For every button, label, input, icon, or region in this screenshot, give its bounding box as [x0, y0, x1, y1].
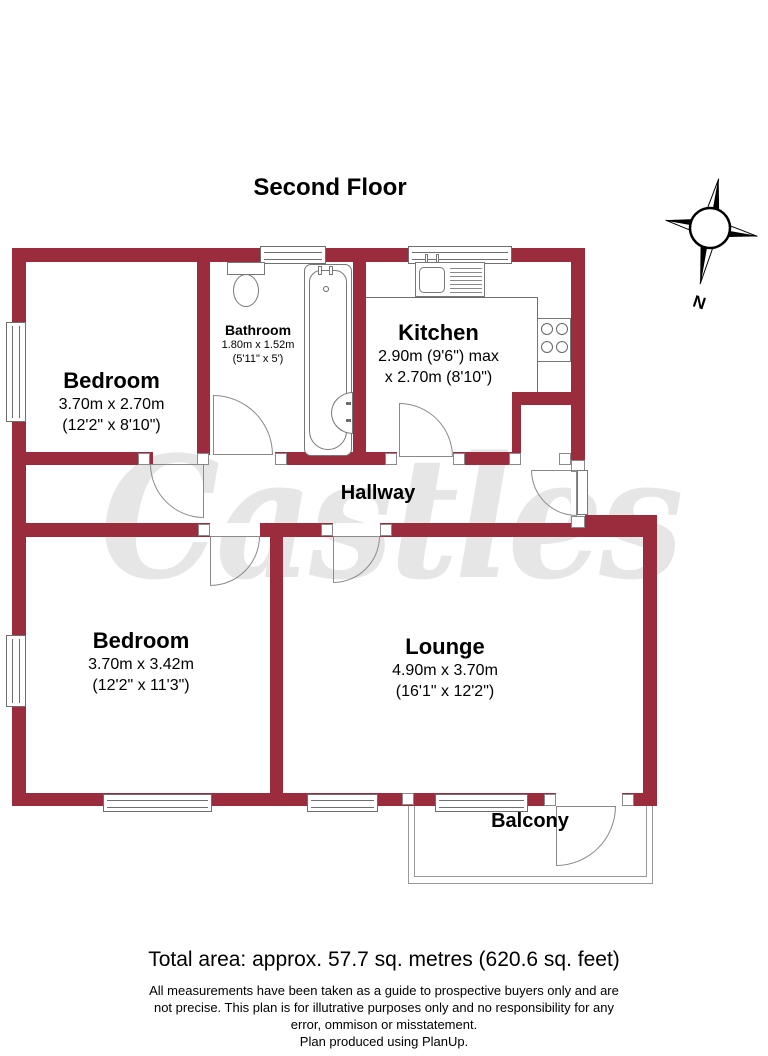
room-dim-imperial: (12'2" x 8'10") — [26, 415, 197, 436]
wall-divider-bath-kitchen — [353, 262, 366, 465]
room-label-bedroom-2: Bedroom 3.70m x 3.42m (12'2" x 11'3") — [26, 628, 256, 696]
door-jamb — [275, 453, 287, 465]
room-name: Bedroom — [26, 628, 256, 654]
door-gap-bedroom2 — [210, 523, 260, 537]
floorplan-page: Castles Second Floor N — [0, 0, 768, 1056]
room-name: Bathroom — [208, 322, 308, 338]
room-name: Kitchen — [366, 320, 511, 346]
disclaimer-line: All measurements have been taken as a gu… — [0, 982, 768, 999]
room-dim-metric: 3.70m x 3.42m — [26, 654, 256, 675]
window-bedroom2-left — [6, 635, 26, 707]
bath-tap — [329, 266, 333, 275]
door-gap-balcony — [556, 793, 622, 806]
wall-lounge-right — [643, 515, 657, 806]
compass-north-label: N — [691, 292, 709, 314]
toilet-bowl — [233, 274, 259, 307]
bath-tap — [318, 266, 322, 275]
door-jamb — [385, 453, 397, 465]
sink-tap — [425, 254, 428, 263]
door-jamb — [380, 524, 392, 536]
window-pane — [12, 639, 20, 703]
room-dim-imperial: (16'1" x 12'2") — [330, 681, 560, 702]
room-label-bedroom-1: Bedroom 3.70m x 2.70m (12'2" x 8'10") — [26, 368, 197, 436]
room-dim-imperial: x 2.70m (8'10") — [366, 367, 511, 388]
hob-ring — [556, 323, 568, 335]
basin-tap — [346, 419, 351, 422]
window-pane — [311, 800, 374, 808]
hob-ring — [541, 323, 553, 335]
bath-drain — [323, 286, 329, 292]
disclaimer-line: not precise. This plan is for illutrativ… — [0, 999, 768, 1016]
door-jamb — [544, 794, 556, 806]
sink-tap — [436, 254, 439, 263]
room-dim-metric: 3.70m x 2.70m — [26, 394, 197, 415]
window-bedroom1-left — [6, 322, 26, 422]
disclaimer-text: All measurements have been taken as a gu… — [0, 982, 768, 1050]
total-area-text: Total area: approx. 57.7 sq. metres (620… — [0, 948, 768, 972]
wall-kitchen-right — [571, 248, 585, 472]
window-bedroom2-bottom — [103, 794, 212, 812]
door-jamb — [321, 524, 333, 536]
entry-door-leaf — [577, 470, 588, 515]
door-jamb — [622, 794, 634, 806]
window-pane — [264, 252, 322, 260]
door-jamb — [138, 453, 150, 465]
door-jamb — [453, 453, 465, 465]
door-jamb — [402, 793, 414, 805]
wall-bed1-bottom — [12, 452, 153, 465]
window-pane — [107, 800, 208, 808]
room-label-lounge: Lounge 4.90m x 3.70m (16'1" x 12'2") — [330, 634, 560, 702]
window-pane — [12, 326, 20, 418]
window-lounge-bottom-1 — [307, 794, 378, 812]
room-dim-metric: 2.90m (9'6") max — [366, 346, 511, 367]
door-jamb — [559, 453, 571, 465]
disclaimer-line: error, ommison or misstatement. — [0, 1016, 768, 1033]
room-dim-metric: 1.80m x 1.52m — [208, 338, 308, 352]
basin-tap — [346, 402, 351, 405]
room-dim-imperial: (5'11" x 5') — [208, 352, 308, 366]
room-dim-metric: 4.90m x 3.70m — [330, 660, 560, 681]
wall-step-right — [580, 515, 657, 537]
sink-bowl — [419, 267, 445, 293]
room-name: Bedroom — [26, 368, 197, 394]
window-bathroom-top — [260, 246, 326, 264]
wall-divider-bed2-lounge — [270, 523, 283, 793]
sink-drainer — [450, 268, 482, 293]
compass-rose-icon: N — [655, 166, 765, 326]
room-name: Lounge — [330, 634, 560, 660]
hob-ring — [541, 341, 553, 353]
room-dim-imperial: (12'2" x 11'3") — [26, 675, 256, 696]
room-label-balcony: Balcony — [440, 810, 620, 833]
wall-cupboard-top — [512, 392, 585, 405]
door-gap-lounge — [333, 523, 380, 537]
page-title: Second Floor — [150, 174, 510, 202]
hob-ring — [556, 341, 568, 353]
door-jamb — [198, 524, 210, 536]
wall-cupboard-left — [512, 392, 521, 453]
disclaimer-line: Plan produced using PlanUp. — [0, 1033, 768, 1050]
door-jamb — [571, 516, 585, 528]
room-label-kitchen: Kitchen 2.90m (9'6") max x 2.70m (8'10") — [366, 320, 511, 388]
room-label-bathroom: Bathroom 1.80m x 1.52m (5'11" x 5') — [208, 322, 308, 366]
room-label-hallway: Hallway — [300, 482, 456, 505]
door-jamb — [509, 453, 521, 465]
counter-edge-h — [366, 297, 538, 298]
